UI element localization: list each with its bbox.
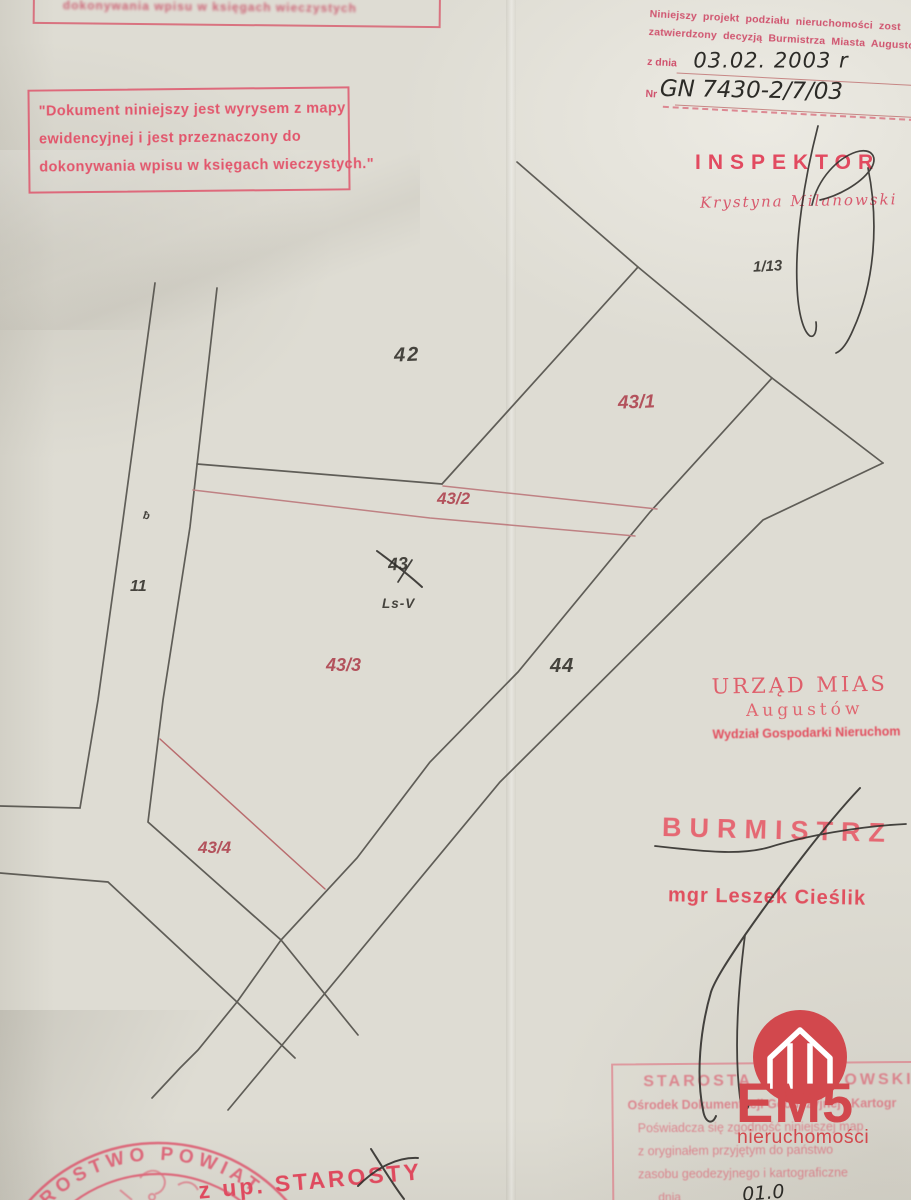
em5-logo-subtitle: nieruchomości bbox=[737, 1126, 869, 1149]
em5-logo-graphic bbox=[0, 0, 911, 1200]
scanned-document-page: 42 43/1 43/2 43 Ls-V 43/3 44 43/4 11 ƀ 1… bbox=[0, 0, 911, 1200]
